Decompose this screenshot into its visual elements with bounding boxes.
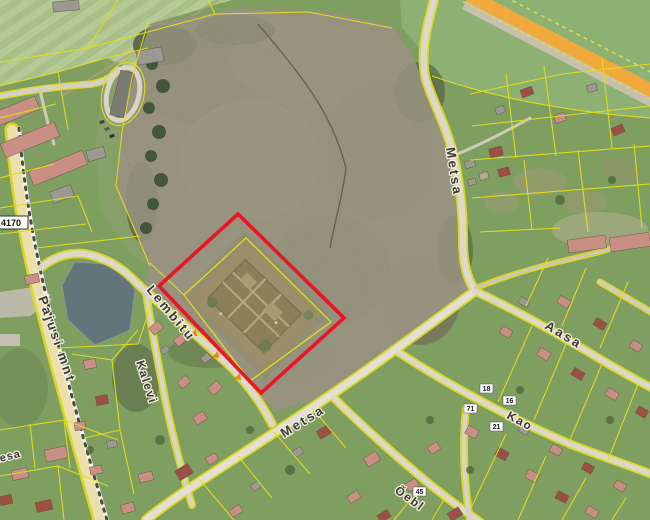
house-number: 21 <box>493 424 501 431</box>
house-number: 71 <box>467 406 475 413</box>
aerial-map: 4170 18 16 71 21 45 Pajusi mnt Lembitu K… <box>0 0 650 520</box>
map-viewport[interactable]: 4170 18 16 71 21 45 Pajusi mnt Lembitu K… <box>0 0 650 520</box>
road-number-text: 4170 <box>1 218 21 228</box>
house-number: 16 <box>506 398 514 405</box>
road-number-badge: 4170 <box>0 216 28 229</box>
house-number: 18 <box>483 386 491 393</box>
